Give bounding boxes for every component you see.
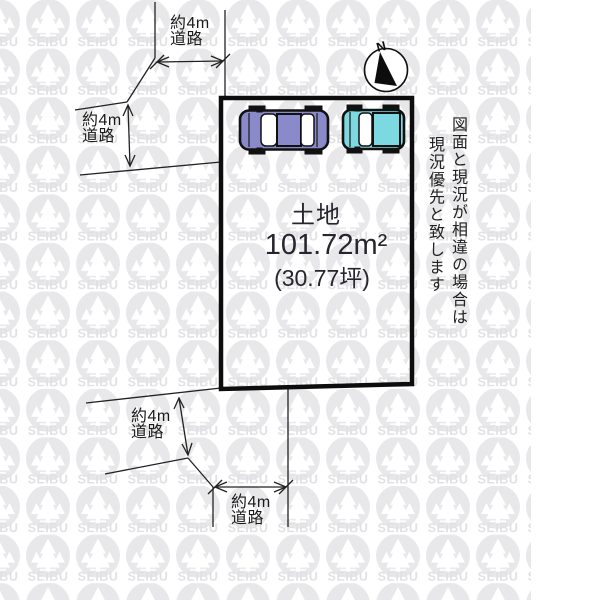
road-label-bottom: 約4m 道路 xyxy=(231,495,271,527)
plot-area-tsubo: (30.77坪) xyxy=(274,259,370,293)
sedan-mirror xyxy=(257,148,262,153)
diagram-geometry: N xyxy=(0,0,600,600)
disclaimer-text: 図面と現況が相違の場合は 現況優先と致します xyxy=(423,116,469,331)
van-mirror xyxy=(355,147,360,152)
van-windshield xyxy=(359,113,372,146)
plot-title: 土地 xyxy=(291,195,341,230)
road-width-text: 約4m xyxy=(131,409,171,425)
road-text: 道路 xyxy=(82,129,122,145)
bottom-left-road-dimension-arrow xyxy=(174,398,192,455)
sedan-roof xyxy=(277,114,301,146)
land-plot-diagram: SEIBU xyxy=(0,0,600,600)
sedan-rear-window xyxy=(301,114,314,146)
compass: N xyxy=(365,38,408,91)
van-mirror xyxy=(355,106,360,111)
disclaimer-line-2: 現況優先と致します xyxy=(423,116,446,331)
road-text: 道路 xyxy=(170,32,210,48)
disclaimer-line-1: 図面と現況が相違の場合は xyxy=(446,116,469,331)
road-width-text: 約4m xyxy=(82,113,122,129)
plot-area-m2: 101.72m² xyxy=(265,229,388,262)
bottom-road-dimension-arrow xyxy=(208,480,293,494)
sedan-windshield xyxy=(261,114,277,146)
road-label-left: 約4m 道路 xyxy=(82,113,122,145)
road-text: 道路 xyxy=(231,511,271,527)
sedan-mirror xyxy=(257,107,262,112)
road-label-top: 約4m 道路 xyxy=(170,16,210,48)
road-width-text: 約4m xyxy=(170,16,210,32)
van-roof xyxy=(373,113,400,146)
left-road-dimension-arrow xyxy=(123,105,135,166)
top-road-dimension-arrow xyxy=(150,54,230,69)
road-text: 道路 xyxy=(131,425,171,441)
car-sedan xyxy=(240,106,328,154)
road-label-bottom-left: 約4m 道路 xyxy=(131,409,171,441)
road-width-text: 約4m xyxy=(231,495,271,511)
car-van xyxy=(343,105,404,153)
